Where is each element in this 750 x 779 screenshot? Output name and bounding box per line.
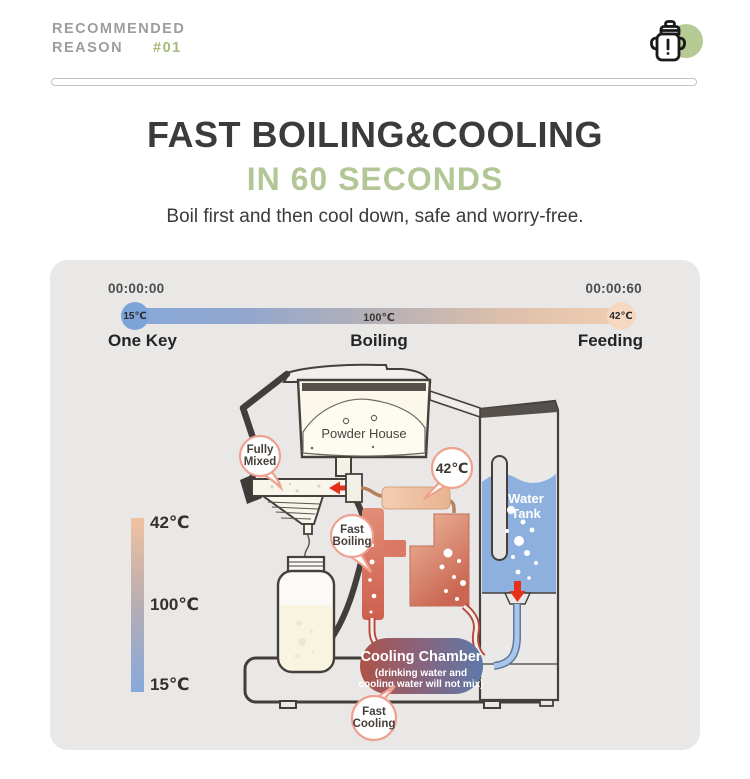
cooling-chamber: Cooling Chamber (drinking water and cool…: [358, 638, 483, 694]
water-tank-label-line1: Water: [508, 491, 544, 506]
tower-foot: [540, 700, 553, 706]
reason-number-badge: #01: [153, 40, 182, 56]
recommended-line: RECOMMENDED: [52, 20, 185, 39]
cup-exclamation-dot: [667, 52, 670, 55]
page-description: Boil first and then cool down, safe and …: [0, 206, 750, 228]
cooling-chamber-note2: cooling water will not mix): [358, 679, 483, 690]
page-title: FAST BOILING&COOLING: [0, 114, 750, 156]
cooling-chamber-note1: (drinking water and: [375, 668, 467, 679]
svg-text:Mixed: Mixed: [244, 456, 277, 468]
svg-text:42℃: 42℃: [436, 460, 469, 476]
bottle-milk: [280, 605, 332, 670]
water-tank-label-line2: Tank: [511, 506, 541, 521]
svg-text:Fast: Fast: [362, 706, 386, 718]
svg-text:Boiling: Boiling: [333, 536, 372, 548]
heating-column-arm: [383, 540, 406, 557]
powder-house: Powder House: [284, 365, 430, 476]
page: RECOMMENDED REASON#01 FAST BOILING&COOLI…: [0, 0, 750, 779]
machine-diagram: 42℃ 100℃ 15℃: [50, 260, 700, 750]
funnel-stem: [304, 524, 312, 534]
svg-text:Fast: Fast: [340, 524, 364, 536]
cooling-chamber-title: Cooling Chamber: [361, 649, 482, 665]
reason-line: REASON#01: [52, 39, 185, 58]
baby-bottle: [278, 557, 334, 672]
temperature-scale: 42℃ 100℃ 15℃: [131, 513, 199, 694]
funnel: [263, 496, 323, 524]
copper-pipe-left: [361, 488, 385, 497]
scale-bottom-temp: 15℃: [150, 675, 190, 694]
scale-mid-temp: 100℃: [150, 595, 199, 614]
sippy-cup-icon: [648, 18, 692, 66]
header-divider: [51, 78, 697, 86]
page-subtitle: IN 60 SECONDS: [0, 161, 750, 198]
fast-boiling-bubble: Fast Boiling: [331, 515, 373, 572]
bottle-neck: [288, 557, 324, 572]
powder-house-label: Powder House: [321, 426, 406, 441]
diagram-panel: 00:00:00 00:00:60 100℃ 15℃ 42℃ One Key B…: [50, 260, 700, 750]
junction-block: [346, 474, 362, 502]
water-level-gauge: [492, 456, 507, 560]
temperature-scale-bar: [131, 518, 144, 692]
powder-house-band: [302, 383, 426, 391]
boiling-chamber: [410, 514, 469, 606]
svg-text:Fully: Fully: [247, 444, 274, 456]
scale-top-temp: 42℃: [150, 513, 190, 532]
svg-text:Cooling: Cooling: [353, 718, 396, 730]
top-connector-shelf: [430, 391, 480, 417]
base-foot-left: [280, 701, 296, 708]
recommended-reason-label: RECOMMENDED REASON#01: [52, 20, 185, 58]
base-foot-right: [484, 701, 500, 708]
